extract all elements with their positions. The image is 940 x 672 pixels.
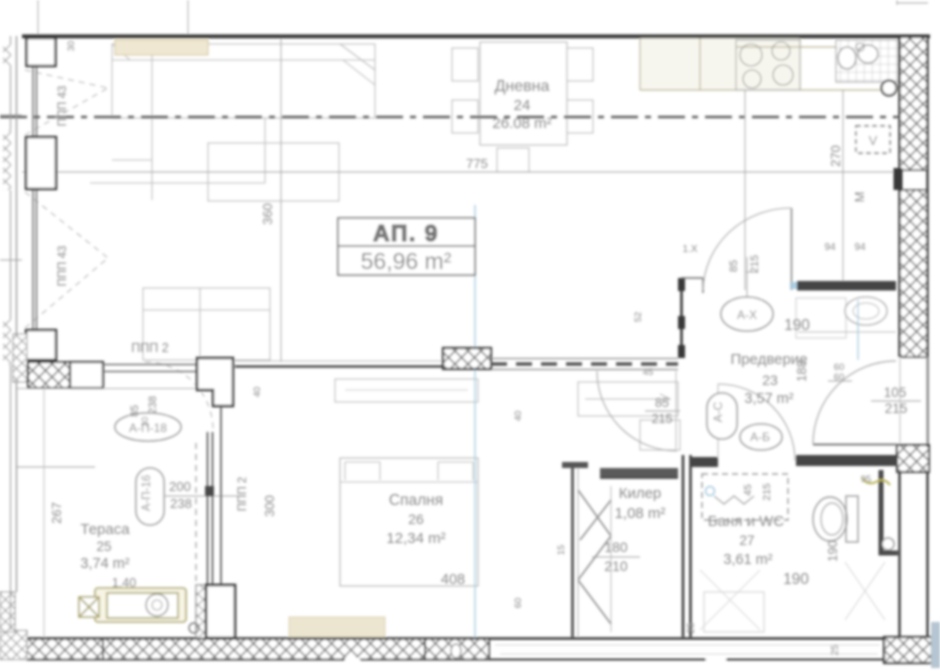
svg-text:ППП 2: ППП 2 bbox=[237, 477, 249, 511]
svg-text:56,96 m²: 56,96 m² bbox=[361, 248, 452, 274]
svg-text:Килер: Килер bbox=[619, 485, 662, 502]
svg-text:15: 15 bbox=[556, 545, 567, 556]
svg-text:180: 180 bbox=[604, 539, 628, 555]
svg-text:25: 25 bbox=[686, 622, 697, 634]
svg-text:85: 85 bbox=[129, 405, 141, 417]
svg-text:60: 60 bbox=[834, 372, 845, 383]
svg-text:45: 45 bbox=[643, 367, 654, 378]
svg-text:25: 25 bbox=[96, 539, 111, 554]
svg-text:775: 775 bbox=[466, 156, 488, 171]
svg-text:40: 40 bbox=[252, 387, 263, 398]
svg-text:ППП 2: ППП 2 bbox=[131, 341, 168, 355]
svg-text:210: 210 bbox=[604, 558, 628, 574]
svg-text:215: 215 bbox=[652, 412, 673, 426]
svg-text:238: 238 bbox=[170, 496, 192, 511]
svg-text:24: 24 bbox=[514, 97, 531, 114]
svg-text:85: 85 bbox=[655, 396, 669, 410]
svg-text:3,57 m²: 3,57 m² bbox=[744, 391, 793, 407]
svg-text:190: 190 bbox=[784, 317, 810, 334]
svg-text:А-С: А-С bbox=[711, 401, 725, 422]
svg-text:12,34 m²: 12,34 m² bbox=[386, 530, 445, 547]
svg-text:23: 23 bbox=[762, 372, 778, 388]
svg-text:45: 45 bbox=[742, 484, 754, 496]
svg-text:30: 30 bbox=[140, 417, 151, 428]
svg-text:А-Х: А-Х bbox=[737, 308, 757, 322]
svg-text:1,08 m²: 1,08 m² bbox=[615, 505, 666, 522]
svg-text:105: 105 bbox=[884, 385, 907, 400]
svg-text:94: 94 bbox=[854, 242, 866, 253]
svg-text:25: 25 bbox=[830, 644, 841, 656]
svg-text:Баня и WC: Баня и WC bbox=[708, 513, 784, 530]
svg-text:30: 30 bbox=[66, 41, 77, 52]
svg-text:238: 238 bbox=[147, 396, 159, 414]
svg-text:94: 94 bbox=[824, 242, 836, 253]
svg-text:190: 190 bbox=[825, 540, 840, 562]
svg-text:Спалня: Спалня bbox=[389, 492, 443, 509]
svg-text:190: 190 bbox=[783, 571, 809, 588]
svg-text:M: M bbox=[852, 192, 867, 203]
svg-text:270: 270 bbox=[828, 145, 843, 167]
svg-text:85: 85 bbox=[728, 260, 740, 272]
svg-text:215: 215 bbox=[749, 255, 761, 273]
svg-text:360: 360 bbox=[260, 203, 275, 225]
svg-text:АП. 9: АП. 9 bbox=[373, 220, 439, 246]
svg-text:26.08 m²: 26.08 m² bbox=[492, 115, 551, 132]
svg-text:27: 27 bbox=[739, 533, 754, 548]
svg-text:40: 40 bbox=[513, 411, 524, 422]
svg-text:3,74 m²: 3,74 m² bbox=[80, 556, 129, 572]
svg-text:52: 52 bbox=[633, 312, 644, 323]
svg-text:215: 215 bbox=[761, 483, 773, 501]
svg-text:V: V bbox=[869, 133, 878, 148]
svg-text:ППП 43: ППП 43 bbox=[57, 246, 69, 287]
svg-text:Дневна: Дневна bbox=[495, 78, 550, 95]
svg-text:95: 95 bbox=[861, 474, 872, 485]
svg-text:267: 267 bbox=[49, 502, 64, 524]
svg-text:Тераса: Тераса bbox=[80, 521, 130, 538]
svg-text:408: 408 bbox=[441, 572, 465, 588]
svg-text:3,61 m²: 3,61 m² bbox=[723, 552, 772, 568]
svg-text:60: 60 bbox=[513, 598, 524, 609]
svg-text:ППП 43: ППП 43 bbox=[57, 86, 69, 127]
svg-text:215: 215 bbox=[885, 401, 908, 416]
svg-text:1.Х: 1.Х bbox=[682, 244, 697, 255]
svg-text:26: 26 bbox=[408, 511, 424, 527]
svg-text:188: 188 bbox=[794, 360, 809, 382]
svg-text:А-П-16: А-П-16 bbox=[141, 475, 153, 511]
svg-text:А-Б: А-Б bbox=[750, 430, 770, 444]
svg-text:300: 300 bbox=[262, 495, 277, 517]
svg-text:1.40: 1.40 bbox=[112, 576, 136, 590]
svg-text:200: 200 bbox=[169, 479, 191, 494]
